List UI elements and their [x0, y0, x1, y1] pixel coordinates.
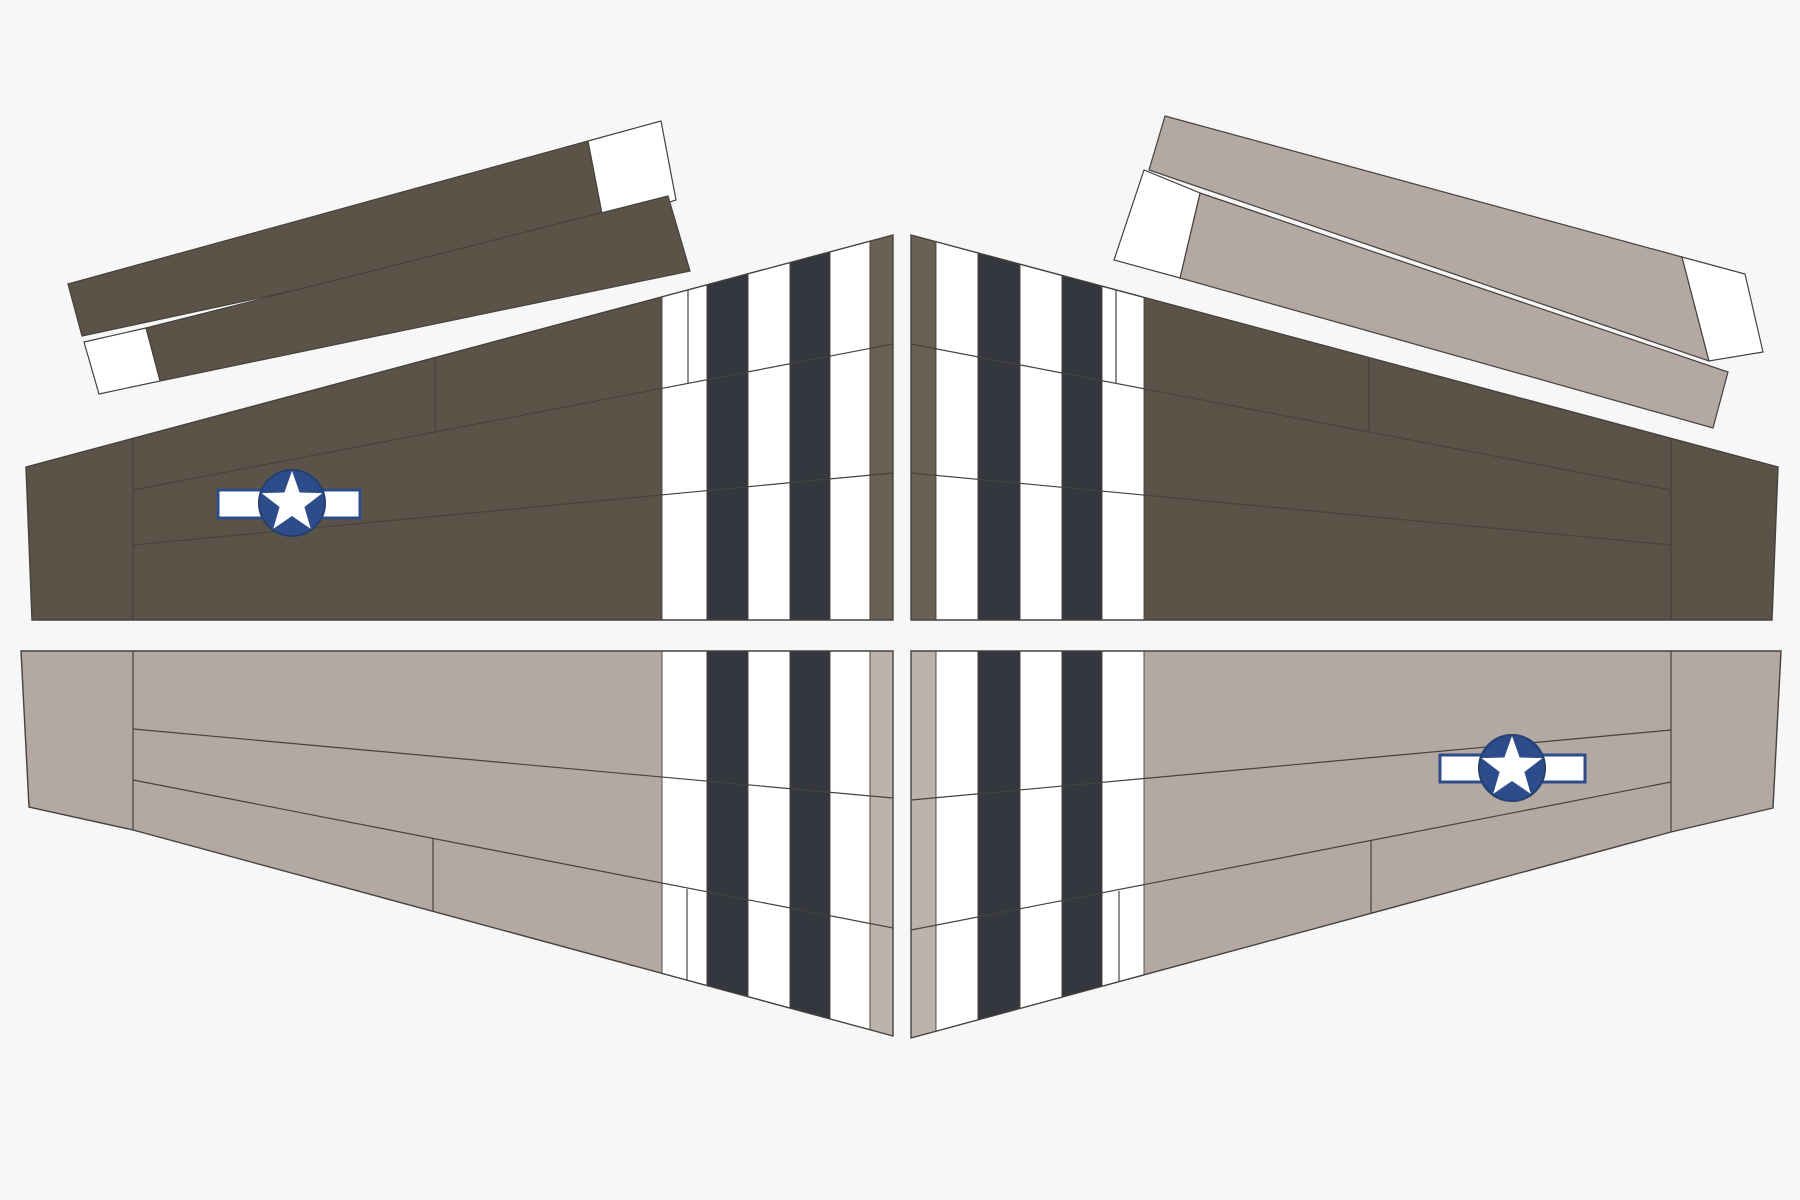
parts-sheet-canvas	[0, 0, 1800, 1200]
parts-sheet	[0, 0, 1800, 1200]
